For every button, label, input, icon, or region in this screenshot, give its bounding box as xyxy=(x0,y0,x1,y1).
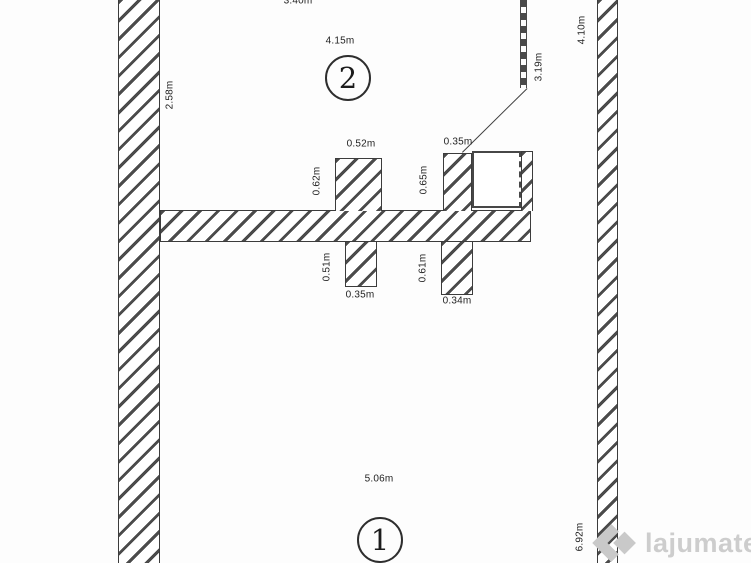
dim-stub-c-width: 0.35m xyxy=(346,290,375,301)
watermark-logo-icon xyxy=(592,524,640,562)
dim-room2-width: 4.15m xyxy=(326,36,355,47)
dim-stub-a-width: 0.52m xyxy=(347,139,376,150)
watermark-name: lajumate xyxy=(645,528,751,559)
dim-room1-width: 5.06m xyxy=(365,474,394,485)
wall-stub-a-up xyxy=(335,158,382,211)
wall-left xyxy=(118,0,160,563)
dim-stub-d-height: 0.61m xyxy=(418,254,429,283)
dim-stub-b-height: 0.65m xyxy=(419,166,430,195)
floor-plan: 3.40m 4.15m 2.58m 3.19m 4.10m 0.52m 0.62… xyxy=(0,0,751,563)
dim-stub-a-height: 0.62m xyxy=(312,167,323,196)
dim-stub-d-width: 0.34m xyxy=(443,296,472,307)
wall-stub-d-down xyxy=(441,242,473,295)
dim-stub-c-height: 0.51m xyxy=(322,253,333,282)
door-opening xyxy=(472,151,521,208)
dim-stub-b-width: 0.35m xyxy=(444,137,473,148)
partition-wall xyxy=(520,0,527,88)
wall-door-jamb xyxy=(521,151,533,211)
dim-partition-height: 3.19m xyxy=(534,53,545,82)
dim-top-width: 3.40m xyxy=(284,0,313,7)
room-1-circle: 1 xyxy=(357,517,403,563)
room-2-circle: 2 xyxy=(325,55,371,101)
wall-stub-c-down xyxy=(345,242,377,287)
watermark: lajumate .ro xyxy=(592,524,751,562)
room-1-number: 1 xyxy=(371,523,389,557)
wall-middle xyxy=(160,210,531,242)
wall-stub-b-up xyxy=(443,153,472,211)
wall-right xyxy=(597,0,618,563)
room-2-number: 2 xyxy=(339,61,357,95)
dim-right-upper-height: 4.10m xyxy=(577,16,588,45)
dim-left-upper-height: 2.58m xyxy=(165,81,176,110)
dim-right-lower-height: 6.92m xyxy=(575,523,586,552)
